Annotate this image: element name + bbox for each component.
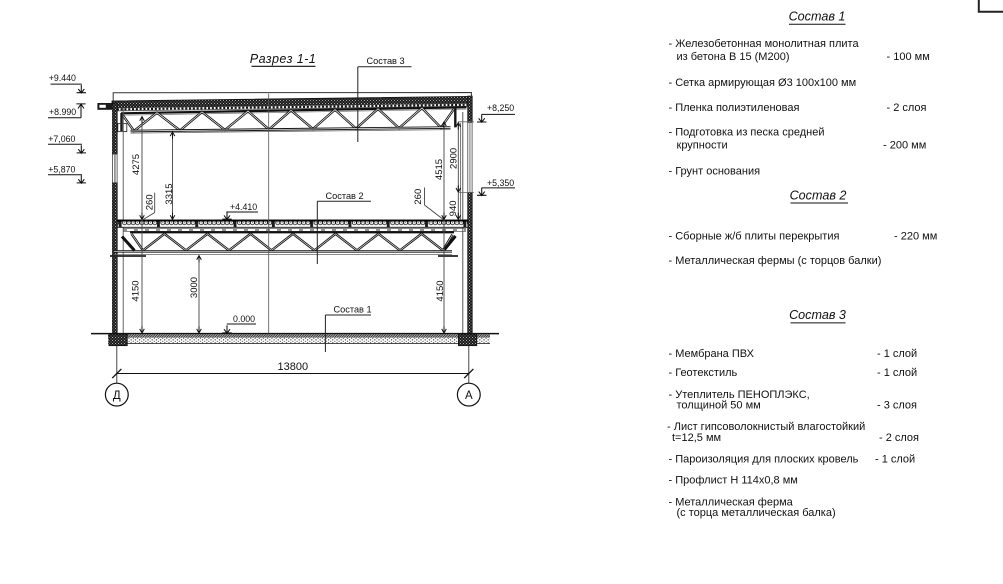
- svg-text:+5,350: +5,350: [487, 178, 514, 188]
- svg-text:260: 260: [144, 194, 155, 210]
- svg-text:- Сборные ж/б плиты перекрытия: - Сборные ж/б плиты перекрытия: [669, 231, 840, 243]
- svg-text:+9.440: +9.440: [49, 73, 76, 83]
- svg-text:- Пленка полиэтиленовая: - Пленка полиэтиленовая: [669, 102, 800, 114]
- svg-text:- Профлист Н 114х0,8 мм: - Профлист Н 114х0,8 мм: [669, 475, 798, 487]
- svg-text:- 2 слоя: - 2 слоя: [887, 102, 927, 114]
- svg-text:+5,870: +5,870: [48, 164, 75, 174]
- svg-text:- 1 слой: - 1 слой: [875, 454, 915, 466]
- svg-text:- 3 слоя: - 3 слоя: [877, 400, 917, 412]
- svg-text:толщиной 50 мм: толщиной 50 мм: [677, 400, 761, 412]
- svg-text:+8.990: +8.990: [49, 107, 76, 117]
- svg-text:- 200 мм: - 200 мм: [883, 140, 926, 152]
- svg-text:Состав 3: Состав 3: [789, 308, 846, 322]
- svg-text:- Геотекстиль: - Геотекстиль: [669, 367, 738, 379]
- svg-text:13800: 13800: [278, 361, 309, 373]
- svg-text:Состав 1: Состав 1: [789, 10, 846, 24]
- svg-text:Состав 3: Состав 3: [367, 56, 405, 66]
- svg-text:- 1 слой: - 1 слой: [877, 348, 917, 360]
- svg-text:- Металлическая фермы (с торцо: - Металлическая фермы (с торцов балки): [669, 255, 882, 267]
- svg-text:260: 260: [413, 189, 424, 205]
- svg-text:- Грунт основания: - Грунт основания: [669, 166, 761, 178]
- svg-text:3315: 3315: [164, 183, 175, 204]
- svg-text:0.000: 0.000: [233, 314, 255, 324]
- svg-text:4150: 4150: [131, 280, 142, 301]
- svg-text:Состав 2: Состав 2: [790, 188, 847, 202]
- svg-text:- 2 слоя: - 2 слоя: [879, 432, 919, 444]
- svg-text:- 220 мм: - 220 мм: [894, 231, 937, 243]
- svg-text:из бетона В 15 (М200): из бетона В 15 (М200): [677, 51, 790, 63]
- svg-text:крупности: крупности: [677, 140, 728, 152]
- svg-text:t=12,5 мм: t=12,5 мм: [672, 432, 721, 444]
- svg-text:+4.410: +4.410: [230, 202, 257, 212]
- svg-text:4150: 4150: [435, 280, 446, 301]
- svg-text:+8,250: +8,250: [487, 103, 514, 113]
- svg-text:+7,060: +7,060: [48, 134, 75, 144]
- svg-text:А: А: [465, 390, 473, 402]
- svg-text:- Пароизоляция для плоских кро: - Пароизоляция для плоских кровель: [669, 454, 859, 466]
- svg-text:- Мембрана ПВХ: - Мембрана ПВХ: [669, 348, 755, 360]
- svg-text:Разрез 1-1: Разрез 1-1: [250, 52, 316, 66]
- svg-text:- Железобетонная монолитная п: - Железобетонная монолитная плита: [669, 38, 860, 50]
- svg-text:- 100 мм: - 100 мм: [887, 51, 930, 63]
- svg-text:2900: 2900: [448, 148, 459, 169]
- svg-text:- 1 слой: - 1 слой: [877, 367, 917, 379]
- svg-text:(с торца металлическая балка): (с торца металлическая балка): [677, 507, 836, 519]
- svg-text:4515: 4515: [434, 159, 445, 180]
- svg-text:Состав 2: Состав 2: [326, 191, 364, 201]
- svg-text:4275: 4275: [131, 154, 142, 175]
- svg-text:Д: Д: [113, 390, 121, 402]
- svg-text:- Сетка армирующая Ø3 100х100: - Сетка армирующая Ø3 100х100 мм: [669, 77, 857, 89]
- svg-text:940: 940: [448, 200, 459, 216]
- svg-text:- Подготовка из песка средней: - Подготовка из песка средней: [669, 127, 825, 139]
- svg-text:3000: 3000: [189, 277, 200, 298]
- svg-text:Состав 1: Состав 1: [334, 305, 372, 315]
